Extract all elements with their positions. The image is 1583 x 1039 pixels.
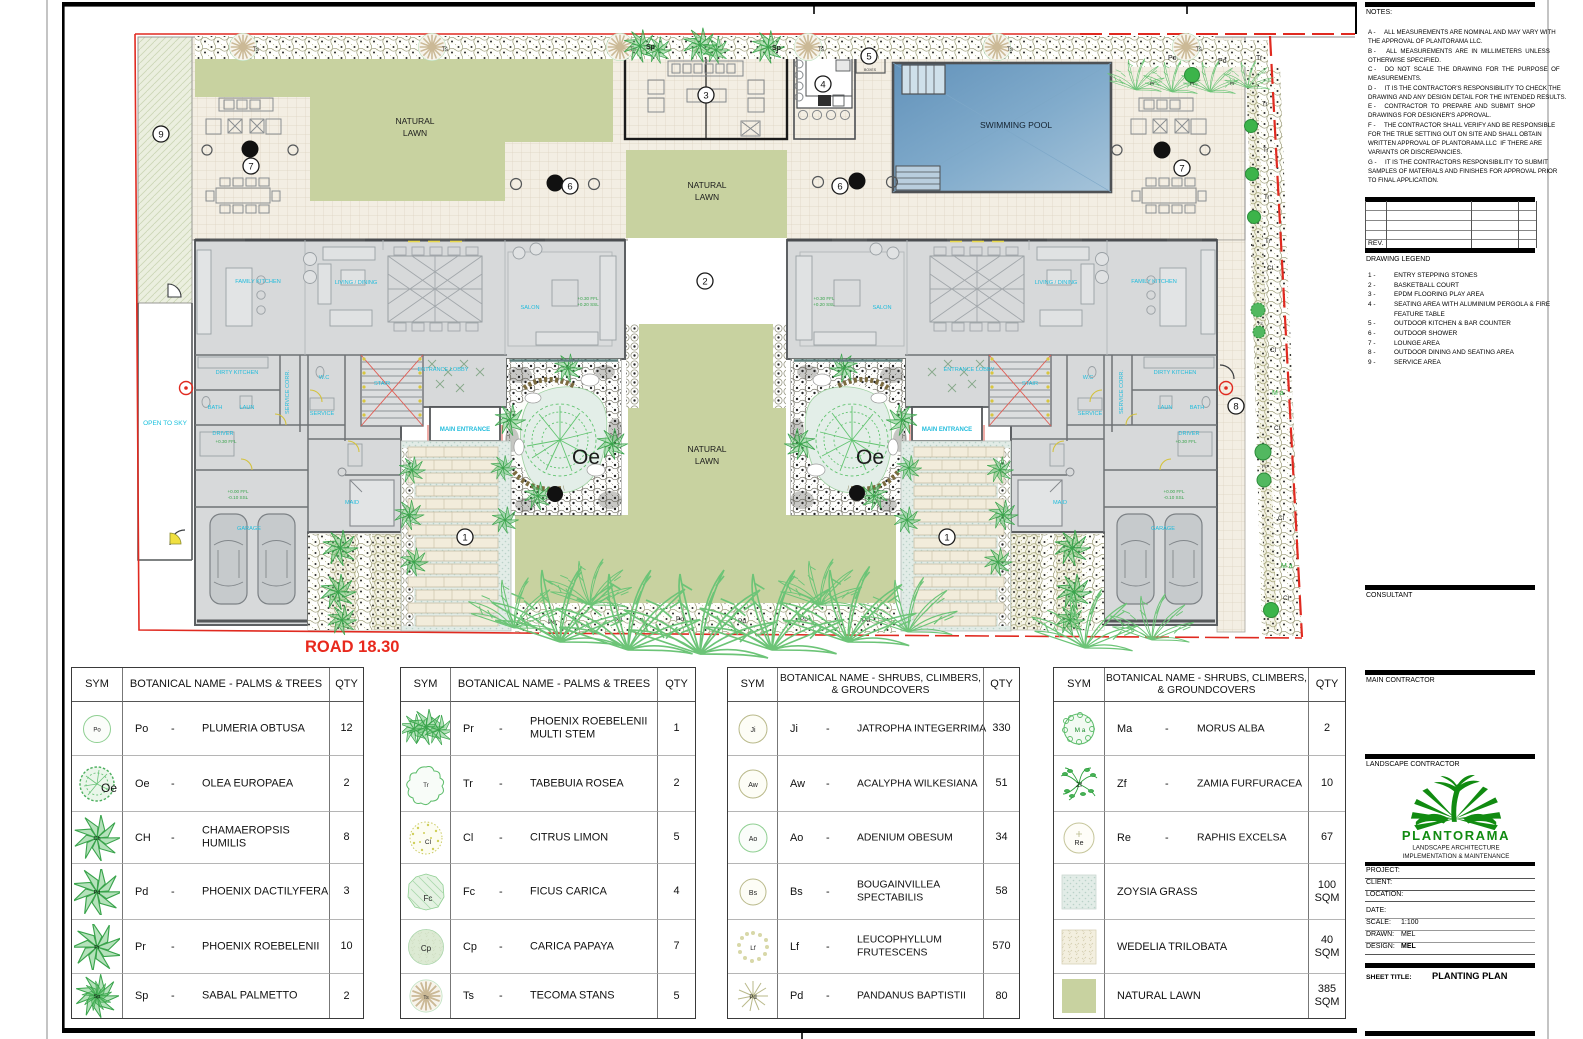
svg-text:Re: Re — [1075, 840, 1084, 847]
svg-text:Cl: Cl — [1278, 515, 1285, 522]
svg-text:3: 3 — [703, 91, 708, 102]
svg-text:MAIN ENTRANCE: MAIN ENTRANCE — [440, 427, 490, 433]
svg-text:LAWN: LAWN — [403, 128, 427, 138]
svg-text:+0.30 FFL: +0.30 FFL — [1175, 439, 1197, 444]
svg-text:DRIVER: DRIVER — [1178, 431, 1199, 437]
svg-text:+0.20 SSL: +0.20 SSL — [577, 302, 599, 307]
svg-text:Fc: Fc — [1258, 321, 1264, 326]
svg-text:LAWN: LAWN — [695, 192, 719, 202]
svg-text:Oe: Oe — [101, 781, 117, 795]
svg-text:NATURAL: NATURAL — [687, 444, 726, 454]
svg-text:Pr: Pr — [1230, 81, 1235, 86]
svg-text:6: 6 — [837, 182, 842, 193]
svg-text:Ts: Ts — [1196, 47, 1202, 53]
svg-text:BOXES: BOXES — [864, 68, 877, 72]
svg-text:Bs: Bs — [748, 890, 757, 897]
svg-text:DIRTY KITCHEN: DIRTY KITCHEN — [1154, 370, 1197, 376]
svg-text:BATH: BATH — [1190, 405, 1205, 411]
svg-text:DRIVER: DRIVER — [212, 431, 233, 437]
svg-text:LAWN: LAWN — [695, 456, 719, 466]
svg-text:FAMILY KITCHEN: FAMILY KITCHEN — [235, 279, 280, 285]
svg-text:GARAGE: GARAGE — [237, 526, 261, 532]
svg-text:Tr: Tr — [1256, 55, 1263, 62]
svg-text:Ch: Ch — [93, 836, 100, 842]
svg-text:9: 9 — [158, 130, 163, 141]
svg-text:Cl: Cl — [1283, 595, 1290, 602]
svg-text:7: 7 — [1179, 164, 1184, 175]
svg-text:Tr: Tr — [1265, 239, 1270, 245]
svg-text:Cp: Cp — [420, 944, 431, 953]
svg-text:NATURAL: NATURAL — [395, 116, 434, 126]
svg-text:BATH: BATH — [208, 405, 223, 411]
svg-text:Po: Po — [1218, 58, 1227, 65]
svg-text:SERVICE CORR.: SERVICE CORR. — [1119, 370, 1125, 414]
svg-text:NATURAL: NATURAL — [687, 180, 726, 190]
svg-text:6: 6 — [567, 182, 572, 193]
svg-text:OPEN TO SKY: OPEN TO SKY — [143, 420, 187, 427]
svg-text:Pr: Pr — [1150, 81, 1155, 86]
svg-text:MAIN ENTRANCE: MAIN ENTRANCE — [922, 427, 972, 433]
svg-text:8: 8 — [1233, 402, 1238, 413]
svg-text:Oe: Oe — [856, 446, 884, 469]
svg-text:M a: M a — [1272, 390, 1284, 397]
svg-text:1: 1 — [462, 533, 467, 544]
svg-text:+0.00 FFL: +0.00 FFL — [227, 489, 249, 494]
svg-text:GARAGE: GARAGE — [1151, 526, 1175, 532]
svg-text:MAID: MAID — [1053, 500, 1067, 506]
svg-text:Ts: Ts — [442, 47, 448, 53]
svg-text:LAUN: LAUN — [1158, 405, 1173, 411]
svg-text:W.C: W.C — [319, 375, 330, 381]
svg-text:Ts: Ts — [1007, 47, 1013, 53]
svg-text:LAUN: LAUN — [240, 405, 255, 411]
svg-text:Po: Po — [676, 616, 684, 623]
svg-text:Cl: Cl — [1274, 425, 1281, 432]
svg-text:SERVICE CORR.: SERVICE CORR. — [285, 370, 291, 414]
svg-text:SERVICE: SERVICE — [310, 411, 335, 417]
svg-text:M a: M a — [1281, 563, 1293, 570]
svg-text:Oe: Oe — [572, 446, 600, 469]
svg-text:Pr: Pr — [1190, 81, 1195, 86]
svg-text:SWIMMING POOL: SWIMMING POOL — [980, 120, 1052, 130]
svg-text:LIVING / DINING: LIVING / DINING — [335, 280, 378, 286]
svg-text:Ts: Ts — [253, 47, 259, 53]
svg-text:Aw: Aw — [748, 782, 759, 789]
svg-text:4: 4 — [820, 80, 825, 91]
svg-text:Tr: Tr — [1262, 102, 1267, 108]
svg-text:2: 2 — [702, 277, 707, 288]
svg-text:Sp: Sp — [646, 44, 655, 51]
svg-text:STAIR: STAIR — [1022, 381, 1038, 387]
svg-text:Ji: Ji — [750, 727, 756, 734]
svg-text:Cl: Cl — [1267, 265, 1274, 272]
svg-text:LANDSCAPE ARCHITECTURE: LANDSCAPE ARCHITECTURE — [1412, 845, 1499, 852]
svg-text:Tr: Tr — [1264, 195, 1269, 201]
svg-text:Tr: Tr — [1263, 148, 1268, 154]
svg-text:Ts: Ts — [423, 995, 429, 1001]
svg-text:M a: M a — [1075, 727, 1086, 734]
svg-text:FAMILY KITCHEN: FAMILY KITCHEN — [1131, 279, 1176, 285]
svg-text:DIRTY KITCHEN: DIRTY KITCHEN — [216, 370, 259, 376]
svg-text:W.C: W.C — [1083, 375, 1094, 381]
svg-text:+0.20 SSL: +0.20 SSL — [813, 302, 835, 307]
svg-text:1: 1 — [944, 533, 949, 544]
svg-text:-0.10 SSL: -0.10 SSL — [1164, 495, 1185, 500]
svg-text:IMPLEMENTATION & MAINTENANCE: IMPLEMENTATION & MAINTENANCE — [1403, 853, 1510, 860]
svg-text:Tr: Tr — [423, 783, 428, 789]
svg-text:+0.30 FFL: +0.30 FFL — [813, 296, 835, 301]
svg-text:ENTRANCE LOBBY: ENTRANCE LOBBY — [944, 367, 995, 373]
svg-text:SALON: SALON — [873, 305, 892, 311]
svg-text:Pd: Pd — [94, 890, 101, 896]
svg-text:+0.30 FFL: +0.30 FFL — [215, 439, 237, 444]
svg-text:5: 5 — [866, 52, 871, 63]
svg-text:Cl: Cl — [424, 839, 431, 846]
svg-text:Lf: Lf — [750, 945, 756, 952]
svg-text:+0.30 FFL: +0.30 FFL — [577, 296, 599, 301]
svg-text:STAIR: STAIR — [374, 381, 390, 387]
svg-text:PLANTORAMA: PLANTORAMA — [1402, 828, 1510, 843]
svg-text:Fc: Fc — [1262, 464, 1268, 469]
svg-text:-0.10 SSL: -0.10 SSL — [228, 495, 249, 500]
svg-text:ROAD 18.30: ROAD 18.30 — [305, 638, 399, 656]
svg-text:Pr: Pr — [94, 945, 100, 951]
svg-text:7: 7 — [248, 162, 253, 173]
svg-text:Po: Po — [93, 727, 101, 733]
svg-text:Sp: Sp — [772, 45, 781, 52]
svg-text:MAID: MAID — [345, 500, 359, 506]
svg-text:LIVING / DINING: LIVING / DINING — [1035, 280, 1078, 286]
svg-text:Sp: Sp — [94, 994, 101, 1000]
svg-text:Ao: Ao — [748, 836, 757, 843]
svg-text:Zf: Zf — [1076, 782, 1082, 789]
svg-text:SALON: SALON — [521, 305, 540, 311]
svg-text:Cl: Cl — [1270, 347, 1277, 354]
svg-text:ENTRANCE LOBBY: ENTRANCE LOBBY — [418, 367, 469, 373]
svg-text:+0.00 FFL: +0.00 FFL — [1163, 489, 1185, 494]
svg-text:Pd: Pd — [749, 995, 756, 1001]
svg-text:SERVICE: SERVICE — [1078, 411, 1103, 417]
svg-text:Ts: Ts — [818, 47, 824, 53]
svg-text:Fc: Fc — [423, 894, 432, 903]
